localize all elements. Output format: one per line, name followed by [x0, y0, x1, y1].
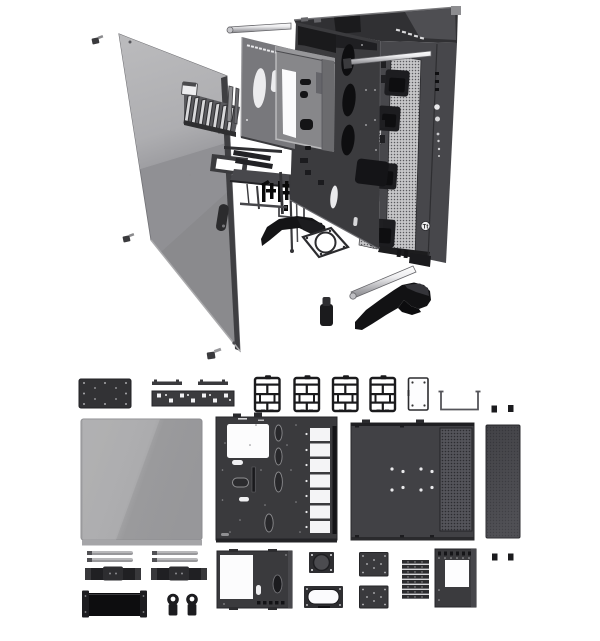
svg-text:Tt: Tt	[423, 225, 429, 231]
